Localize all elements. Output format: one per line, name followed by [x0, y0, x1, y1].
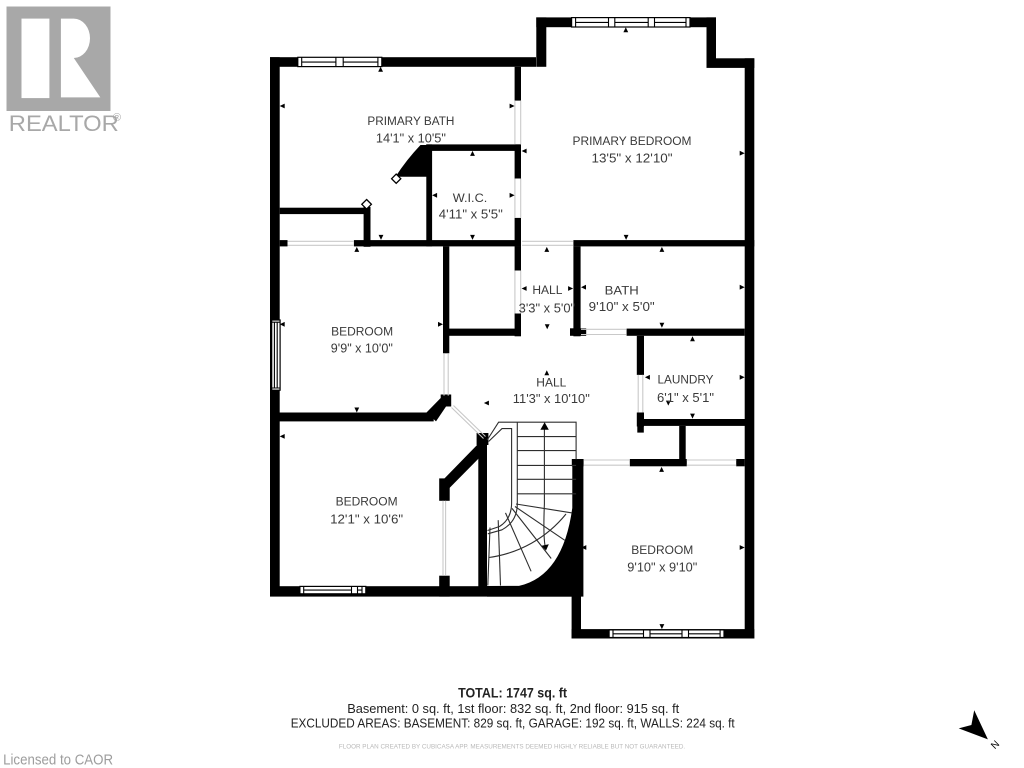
svg-text:Licensed to CAOR: Licensed to CAOR	[3, 752, 113, 768]
svg-text:13'5" x 12'10": 13'5" x 12'10"	[592, 150, 673, 165]
svg-text:PRIMARY BATH: PRIMARY BATH	[367, 114, 454, 128]
svg-text:FLOOR PLAN CREATED BY CUBICASA: FLOOR PLAN CREATED BY CUBICASA APP. MEAS…	[339, 744, 686, 751]
svg-text:REALTOR: REALTOR	[9, 111, 119, 136]
svg-text:BATH: BATH	[605, 284, 639, 298]
svg-text:TOTAL: 1747 sq. ft: TOTAL: 1747 sq. ft	[458, 686, 567, 701]
svg-text:BEDROOM: BEDROOM	[331, 324, 393, 338]
svg-text:PRIMARY BEDROOM: PRIMARY BEDROOM	[573, 134, 692, 148]
svg-text:12'1" x 10'6": 12'1" x 10'6"	[330, 511, 403, 526]
svg-text:HALL: HALL	[536, 376, 566, 390]
svg-text:14'1" x 10'5": 14'1" x 10'5"	[376, 131, 446, 146]
svg-text:HALL: HALL	[532, 283, 562, 297]
svg-text:9'9" x 10'0": 9'9" x 10'0"	[331, 341, 393, 356]
svg-text:EXCLUDED AREAS: BASEMENT: 829: EXCLUDED AREAS: BASEMENT: 829 sq. ft, GA…	[291, 716, 735, 731]
svg-text:9'10" x 5'0": 9'10" x 5'0"	[589, 299, 655, 314]
svg-text:6'1" x 5'1": 6'1" x 5'1"	[657, 390, 714, 405]
svg-text:®: ®	[113, 112, 121, 124]
svg-text:BEDROOM: BEDROOM	[336, 494, 398, 508]
svg-text:Basement: 0 sq. ft, 1st floor:: Basement: 0 sq. ft, 1st floor: 832 sq. f…	[347, 701, 679, 716]
svg-text:4'11" x 5'5": 4'11" x 5'5"	[439, 206, 503, 221]
svg-text:W.I.C.: W.I.C.	[453, 191, 488, 205]
svg-text:3'3" x 5'0": 3'3" x 5'0"	[519, 300, 576, 315]
svg-text:9'10" x 9'10": 9'10" x 9'10"	[627, 559, 697, 574]
svg-text:BEDROOM: BEDROOM	[631, 543, 693, 557]
svg-text:11'3" x 10'10": 11'3" x 10'10"	[513, 391, 590, 406]
svg-text:LAUNDRY: LAUNDRY	[658, 373, 714, 387]
